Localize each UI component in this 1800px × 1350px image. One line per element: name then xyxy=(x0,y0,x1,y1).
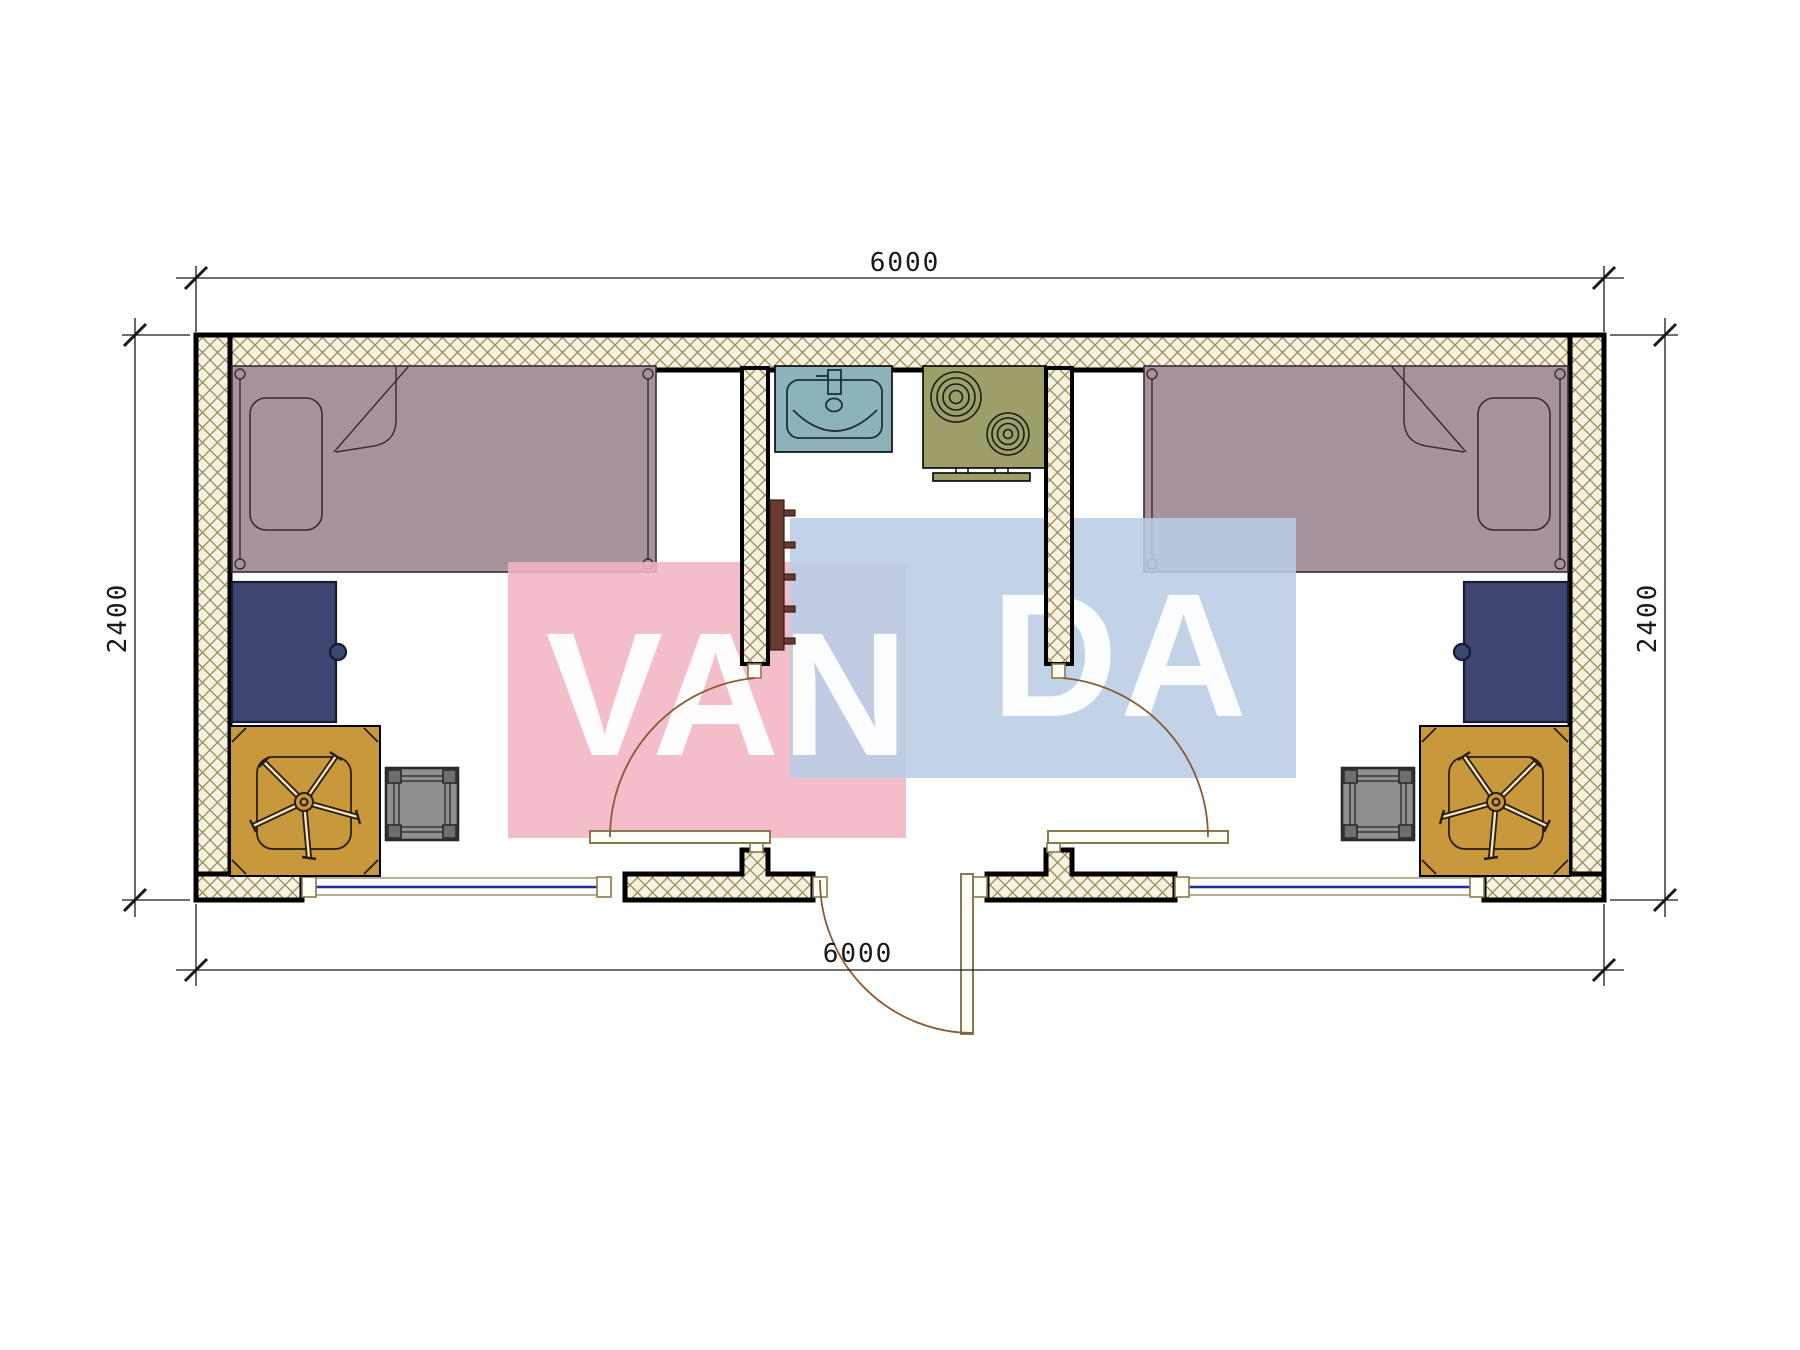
wall-right xyxy=(1570,335,1604,900)
jamb xyxy=(1470,877,1484,897)
stool-right xyxy=(1342,768,1414,840)
stool-left xyxy=(386,768,458,840)
dimension-bottom: 6000 xyxy=(176,904,1624,986)
door-leaf xyxy=(961,874,973,1034)
dim-label-right: 2400 xyxy=(1633,583,1663,654)
stove-handle xyxy=(933,473,1030,481)
door-leaf xyxy=(1048,831,1228,843)
wall-bottom-left-corner xyxy=(196,874,302,900)
floor-plan-canvas: VAN DA xyxy=(0,0,1800,1350)
dim-label-bottom: 6000 xyxy=(823,939,894,969)
jamb xyxy=(1047,843,1060,852)
partition-left xyxy=(742,368,768,664)
jamb xyxy=(750,843,763,852)
desk-knob-left xyxy=(330,644,346,660)
dimension-top: 6000 xyxy=(176,248,1624,332)
jamb xyxy=(302,877,316,897)
desk-left xyxy=(232,582,346,722)
pillow-left xyxy=(250,398,322,530)
bed-left xyxy=(232,366,656,572)
jamb xyxy=(1175,877,1189,897)
dimension-left: 2400 xyxy=(103,318,190,917)
office-chair-left xyxy=(230,726,380,876)
jamb xyxy=(1052,664,1065,678)
watermark-text-da: DA xyxy=(991,558,1249,754)
office-chair-right xyxy=(1420,726,1570,876)
desk-right xyxy=(1454,582,1568,722)
wall-bottom-right-corner xyxy=(1484,874,1604,900)
windows xyxy=(302,877,1484,897)
door-leaf xyxy=(590,831,770,843)
stove xyxy=(923,366,1046,481)
pillow-right xyxy=(1478,398,1550,530)
floor-plan-drawing: VAN DA xyxy=(0,0,1800,1350)
wall-bottom-mid-left xyxy=(625,850,813,900)
jamb xyxy=(597,877,611,897)
wall-bottom-mid-right xyxy=(987,850,1175,900)
sink xyxy=(775,366,892,452)
jamb xyxy=(748,664,761,678)
desk-knob-right xyxy=(1454,644,1470,660)
watermark-text-van: VAN xyxy=(546,597,911,793)
wall-top xyxy=(196,335,1604,370)
dim-label-left: 2400 xyxy=(103,583,133,654)
dimension-right: 2400 xyxy=(1610,318,1678,917)
wall-left xyxy=(196,335,230,900)
watermark: VAN DA xyxy=(508,518,1296,838)
dim-label-top: 6000 xyxy=(870,248,941,278)
jamb xyxy=(973,877,987,897)
partition-right xyxy=(1046,368,1072,664)
